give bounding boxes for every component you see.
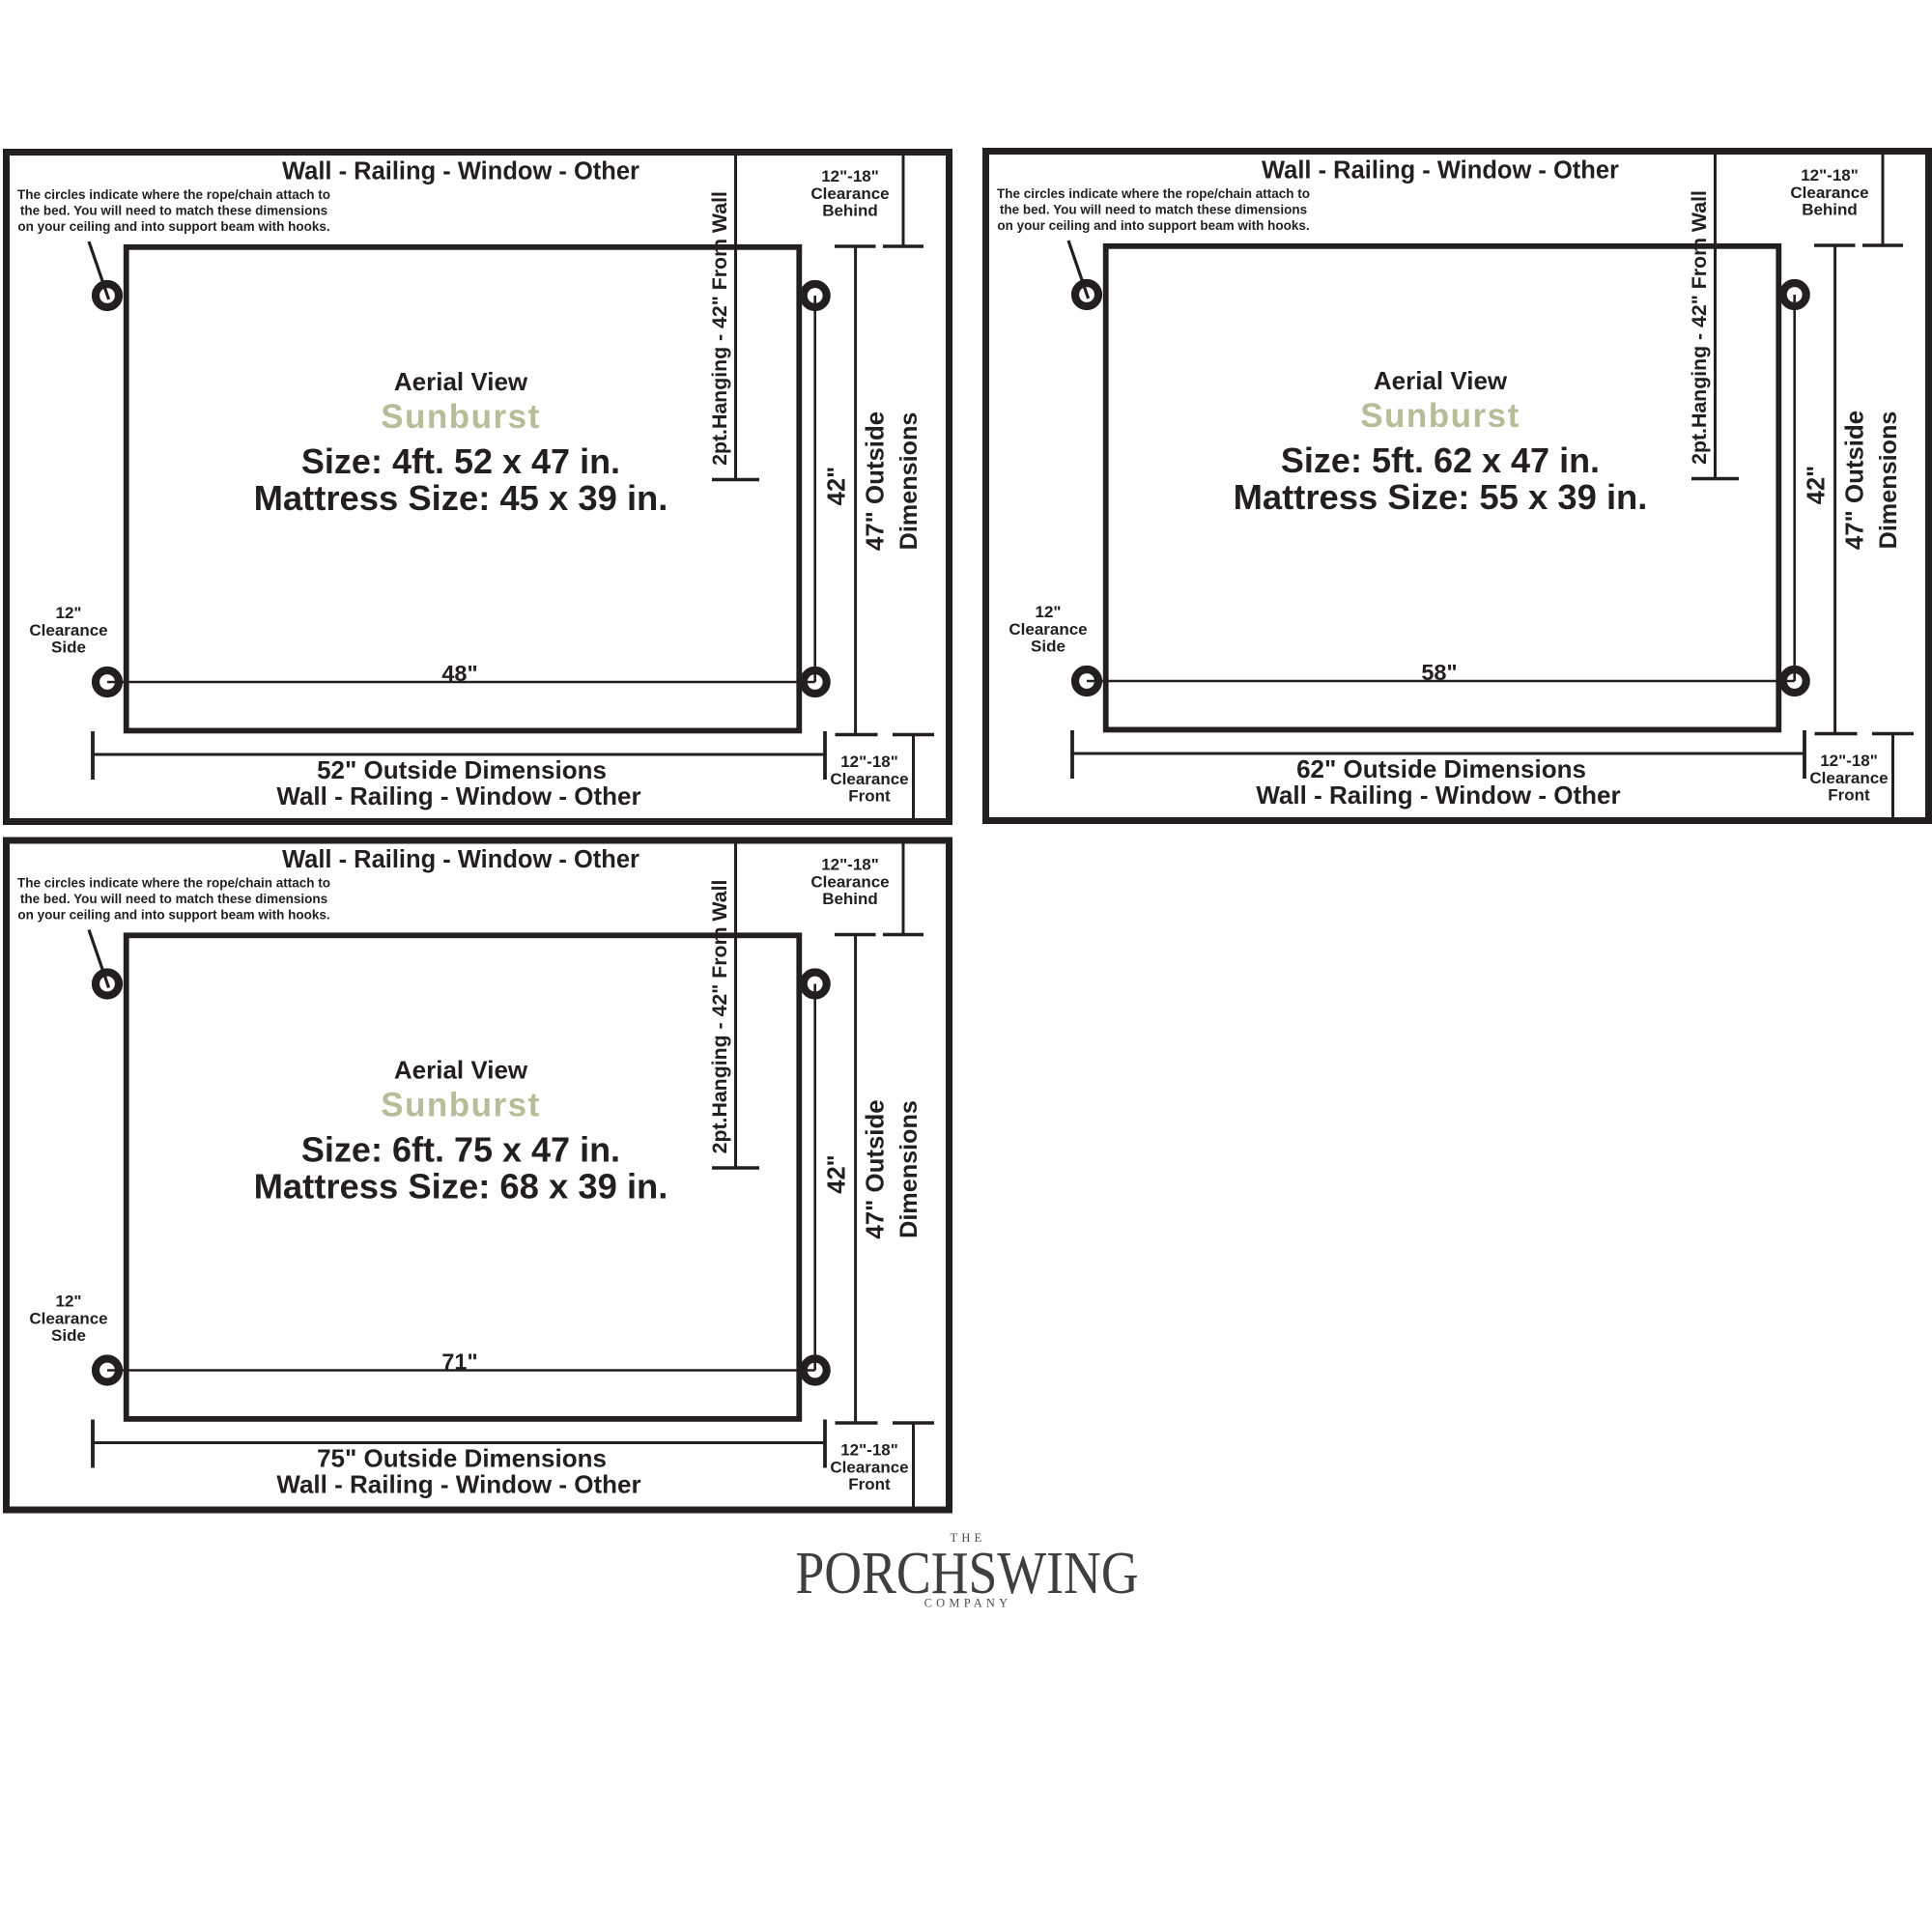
svg-text:Aerial View: Aerial View: [394, 1056, 528, 1085]
svg-text:Mattress Size: 68 x 39 in.: Mattress Size: 68 x 39 in.: [254, 1167, 668, 1207]
svg-text:42": 42": [1804, 466, 1831, 504]
svg-text:The circles indicate where the: The circles indicate where the rope/chai…: [997, 186, 1310, 201]
svg-text:Clearance: Clearance: [29, 621, 107, 639]
svg-text:Side: Side: [51, 639, 86, 657]
svg-text:42": 42": [824, 467, 851, 505]
svg-text:Wall - Railing - Window - Othe: Wall - Railing - Window - Other: [1262, 157, 1619, 185]
svg-text:Size: 5ft. 62 x 47 in.: Size: 5ft. 62 x 47 in.: [1281, 440, 1600, 480]
svg-text:Wall - Railing - Window - Othe: Wall - Railing - Window - Other: [276, 1470, 640, 1499]
svg-text:the bed. You will need to matc: the bed. You will need to match these di…: [20, 892, 327, 906]
svg-text:Behind: Behind: [822, 890, 878, 908]
svg-text:Clearance: Clearance: [1809, 769, 1888, 787]
svg-text:Clearance: Clearance: [810, 872, 889, 891]
svg-text:48": 48": [441, 661, 477, 686]
svg-text:Wall - Railing - Window - Othe: Wall - Railing - Window - Other: [282, 158, 639, 185]
svg-text:Size: 6ft. 75 x 47 in.: Size: 6ft. 75 x 47 in.: [301, 1130, 620, 1170]
svg-text:Sunburst: Sunburst: [1360, 397, 1520, 435]
svg-text:Wall - Railing - Window - Othe: Wall - Railing - Window - Other: [276, 781, 640, 810]
svg-text:Clearance: Clearance: [830, 770, 908, 788]
svg-text:Size: 4ft. 52 x 47 in.: Size: 4ft. 52 x 47 in.: [301, 441, 620, 481]
svg-text:Clearance: Clearance: [1790, 184, 1868, 202]
svg-text:62" Outside Dimensions: 62" Outside Dimensions: [1296, 754, 1586, 783]
svg-text:Wall - Railing - Window - Othe: Wall - Railing - Window - Other: [282, 846, 639, 873]
svg-text:47" Outside: 47" Outside: [862, 412, 889, 551]
svg-text:Front: Front: [1828, 786, 1870, 805]
svg-text:Dimensions: Dimensions: [895, 412, 923, 551]
svg-text:on your ceiling and into suppo: on your ceiling and into support beam wi…: [17, 219, 329, 234]
svg-text:Clearance: Clearance: [810, 185, 889, 203]
svg-text:2pt.Hanging - 42" From Wall: 2pt.Hanging - 42" From Wall: [1688, 190, 1711, 465]
svg-text:Front: Front: [848, 787, 891, 806]
svg-text:12"-18": 12"-18": [821, 856, 879, 874]
svg-text:Clearance: Clearance: [830, 1458, 908, 1476]
svg-text:Aerial View: Aerial View: [394, 367, 528, 396]
svg-text:47" Outside: 47" Outside: [1841, 411, 1868, 550]
svg-text:on your ceiling and into suppo: on your ceiling and into support beam wi…: [997, 218, 1309, 233]
svg-text:Dimensions: Dimensions: [1875, 412, 1902, 550]
svg-text:Clearance: Clearance: [29, 1309, 107, 1327]
svg-text:12"-18": 12"-18": [1820, 752, 1878, 770]
svg-text:COMPANY: COMPANY: [924, 1597, 1012, 1610]
svg-text:12": 12": [56, 604, 82, 622]
svg-text:12"-18": 12"-18": [1801, 166, 1859, 185]
svg-text:Sunburst: Sunburst: [381, 1087, 541, 1124]
svg-text:12"-18": 12"-18": [840, 1441, 898, 1460]
svg-text:2pt.Hanging - 42" From Wall: 2pt.Hanging - 42" From Wall: [708, 191, 731, 466]
svg-text:Side: Side: [51, 1326, 86, 1345]
svg-text:Dimensions: Dimensions: [895, 1100, 923, 1238]
svg-text:the bed. You will need to matc: the bed. You will need to match these di…: [1000, 202, 1307, 216]
svg-text:Clearance: Clearance: [1009, 620, 1087, 639]
svg-text:Mattress Size: 45 x 39 in.: Mattress Size: 45 x 39 in.: [254, 478, 668, 518]
svg-text:42": 42": [824, 1154, 851, 1193]
svg-text:75" Outside Dimensions: 75" Outside Dimensions: [317, 1444, 607, 1473]
svg-text:The circles indicate where the: The circles indicate where the rope/chai…: [17, 876, 330, 891]
svg-text:Sunburst: Sunburst: [381, 398, 541, 436]
svg-text:12"-18": 12"-18": [840, 753, 898, 771]
svg-text:12": 12": [56, 1293, 82, 1311]
svg-text:71": 71": [441, 1350, 477, 1375]
svg-text:The circles indicate where the: The circles indicate where the rope/chai…: [17, 187, 330, 202]
svg-text:on your ceiling and into suppo: on your ceiling and into support beam wi…: [17, 907, 329, 922]
svg-text:2pt.Hanging - 42" From Wall: 2pt.Hanging - 42" From Wall: [708, 880, 731, 1154]
svg-text:Mattress Size: 55 x 39 in.: Mattress Size: 55 x 39 in.: [1234, 477, 1648, 517]
svg-text:58": 58": [1421, 660, 1457, 685]
svg-text:Behind: Behind: [822, 202, 878, 220]
svg-text:12": 12": [1036, 603, 1062, 621]
svg-text:the bed. You will need to matc: the bed. You will need to match these di…: [20, 203, 327, 217]
svg-text:12"-18": 12"-18": [821, 167, 879, 185]
svg-text:Behind: Behind: [1802, 201, 1858, 219]
svg-text:Aerial View: Aerial View: [1374, 366, 1508, 395]
svg-text:52" Outside Dimensions: 52" Outside Dimensions: [317, 755, 607, 784]
svg-text:Side: Side: [1031, 638, 1065, 656]
svg-text:47" Outside: 47" Outside: [862, 1099, 889, 1238]
svg-text:Front: Front: [848, 1475, 891, 1493]
svg-text:Wall - Railing - Window - Othe: Wall - Railing - Window - Other: [1256, 781, 1620, 810]
